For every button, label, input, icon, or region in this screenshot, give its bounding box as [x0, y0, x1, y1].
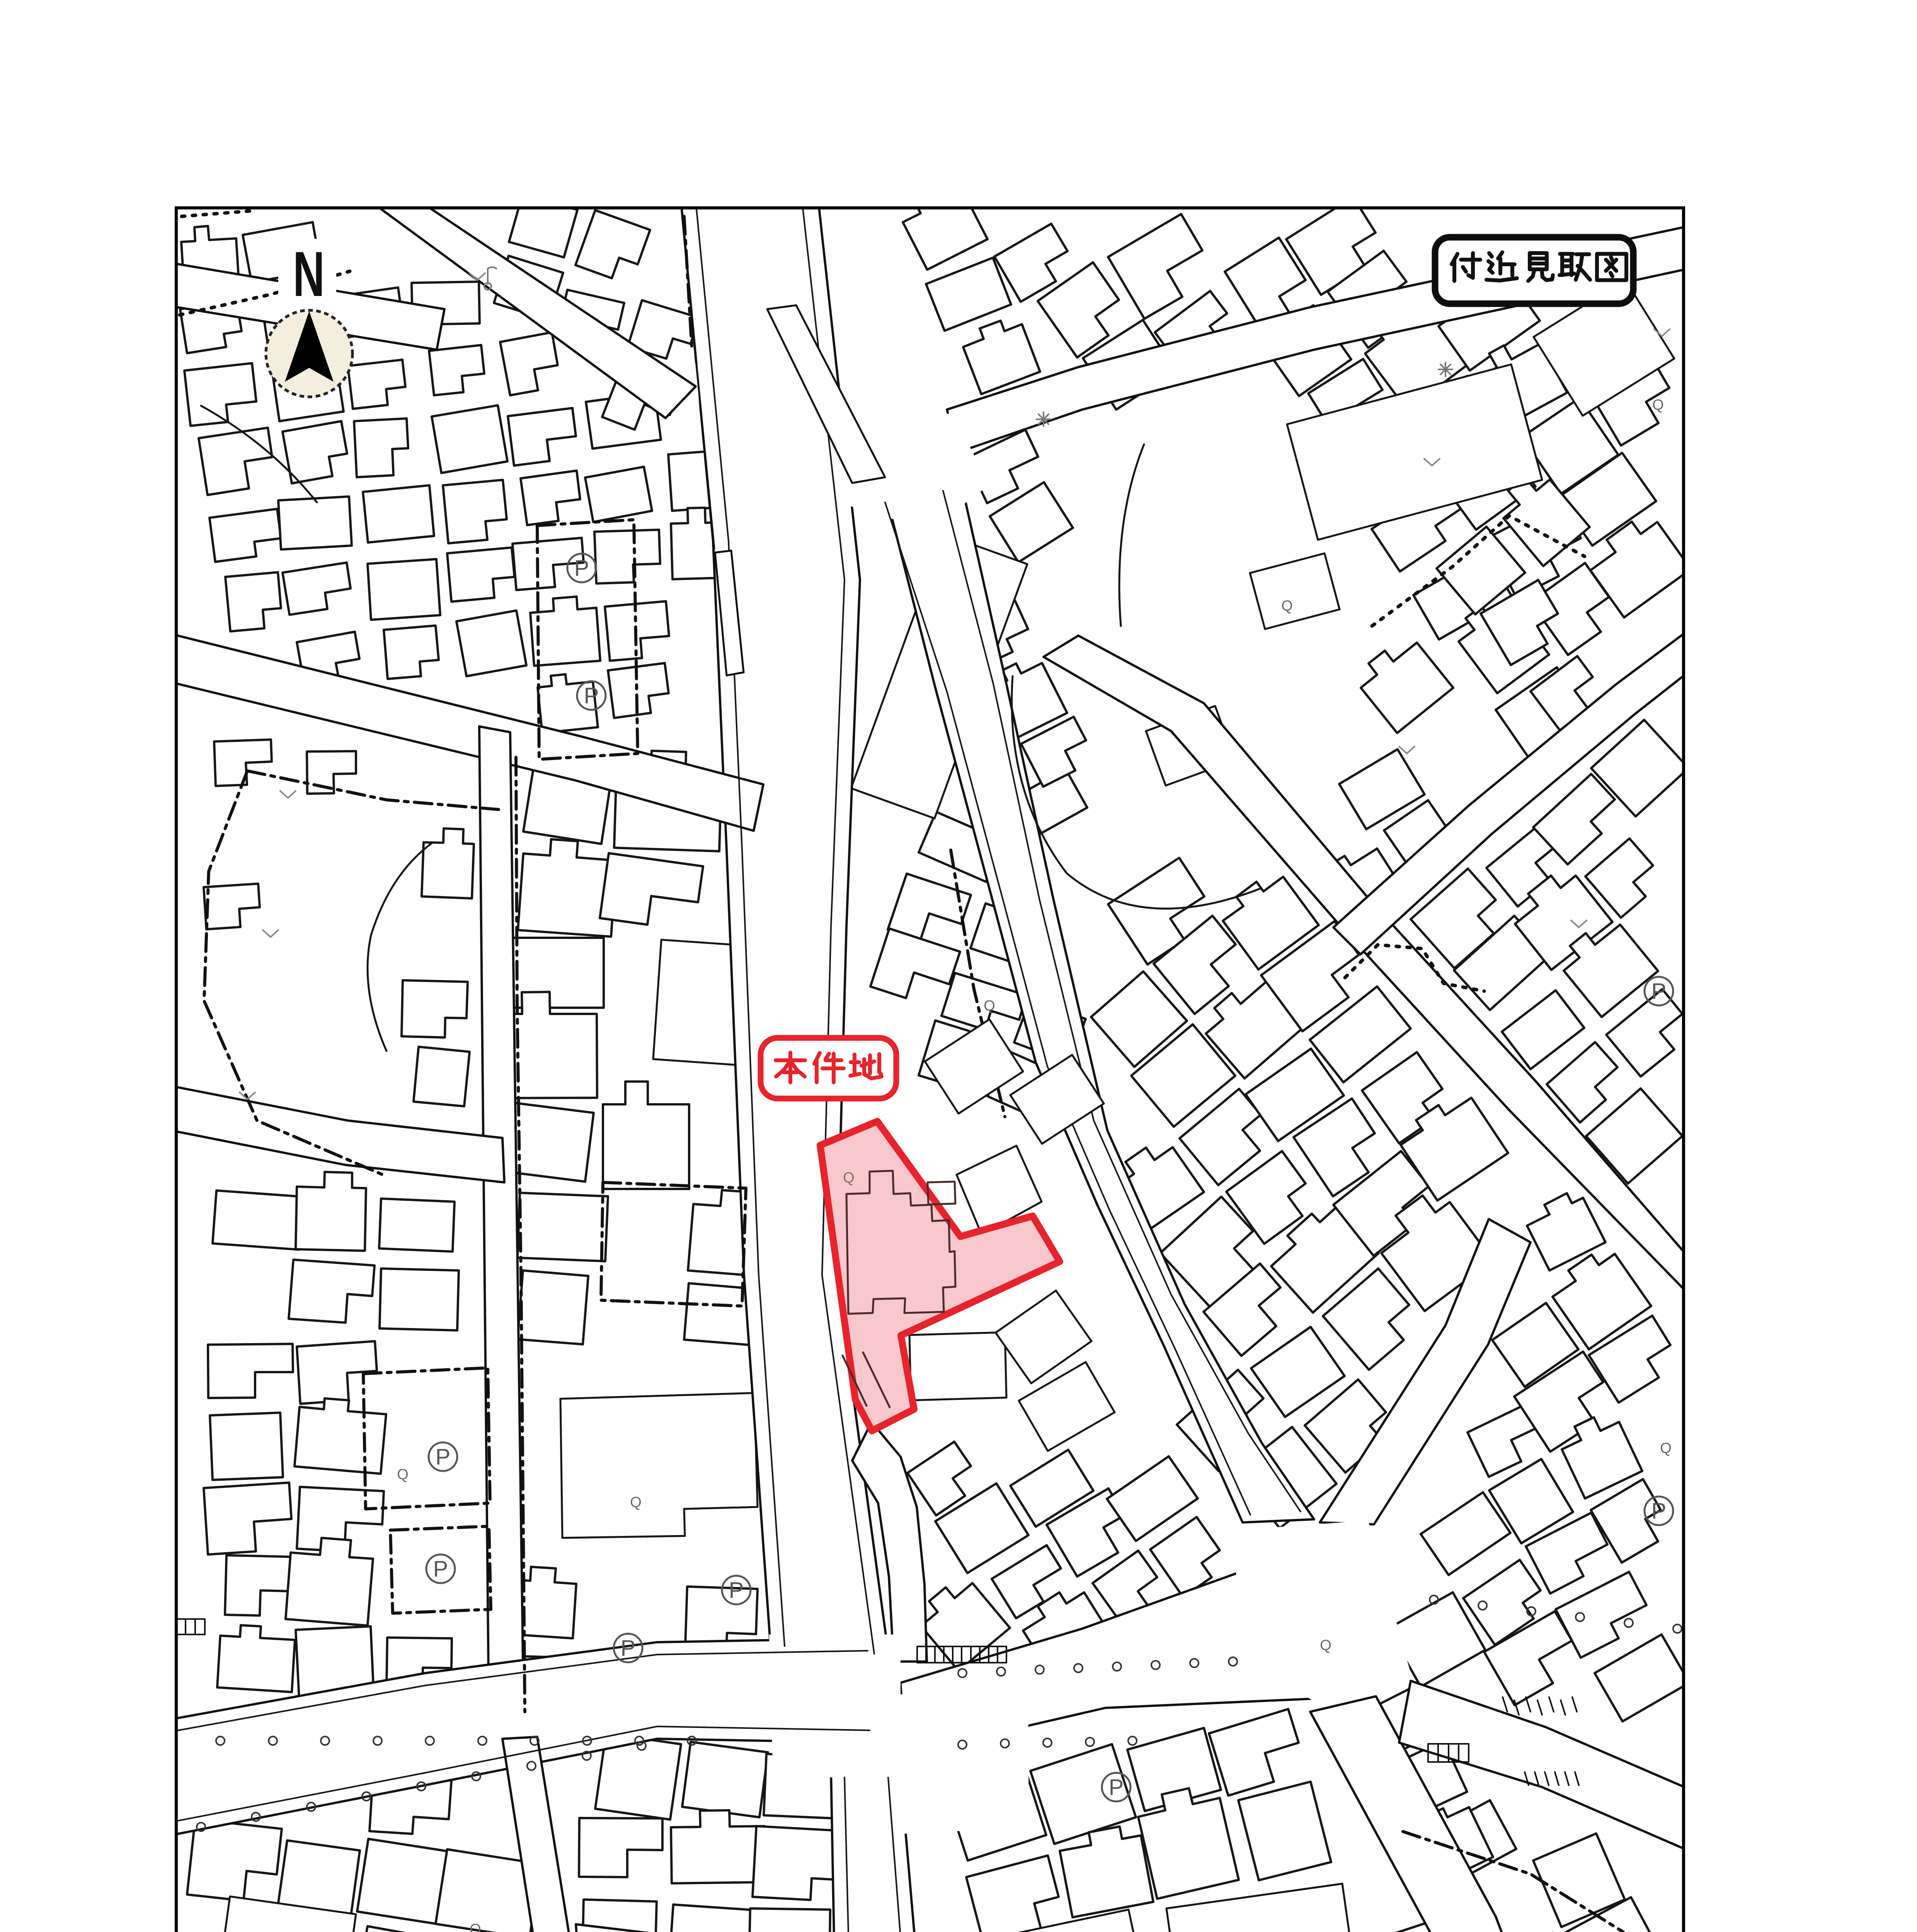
svg-text:N: N — [293, 238, 325, 310]
svg-text:P: P — [1651, 1498, 1667, 1524]
svg-text:Q: Q — [984, 998, 995, 1014]
svg-text:Q: Q — [397, 1466, 409, 1483]
svg-text:P: P — [574, 556, 589, 581]
svg-text:Q: Q — [1281, 598, 1293, 614]
svg-text:Q: Q — [470, 1921, 481, 1932]
svg-text:P: P — [436, 1444, 451, 1469]
svg-text:Q: Q — [1320, 1637, 1331, 1653]
svg-text:Q: Q — [843, 1170, 855, 1186]
svg-text:Q: Q — [1660, 1440, 1672, 1456]
svg-text:Q: Q — [1652, 397, 1664, 413]
svg-text:Q: Q — [630, 1494, 642, 1510]
svg-text:P: P — [1109, 1775, 1124, 1800]
svg-text:P: P — [621, 1636, 636, 1661]
svg-text:P: P — [729, 1578, 744, 1603]
svg-text:P: P — [1651, 979, 1667, 1004]
svg-text:P: P — [433, 1556, 448, 1582]
svg-text:P: P — [584, 683, 599, 708]
